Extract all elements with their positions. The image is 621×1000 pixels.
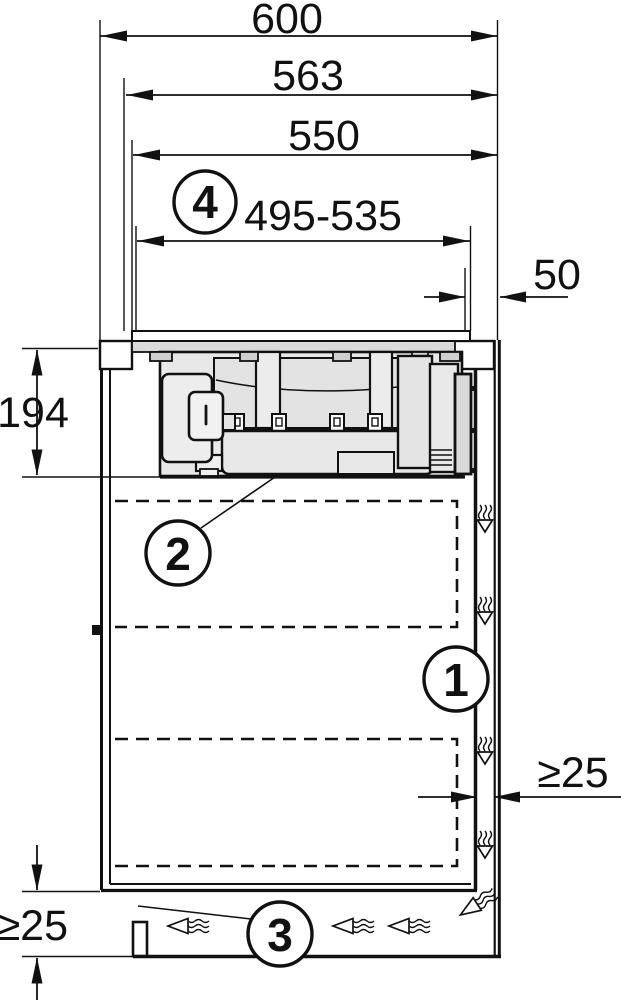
dim-194-label: 194 (0, 389, 69, 437)
dim-min25-right-label: ≥25 (537, 749, 608, 797)
callout-2: 2 (146, 521, 210, 585)
plinth-board (133, 922, 147, 956)
callout-1-label: 1 (443, 654, 469, 706)
dim-563-label: 563 (272, 52, 344, 100)
diagram-canvas: 4 2 1 3 600 563 550 495-535 50 194 ≥25 ≥… (0, 0, 621, 1000)
callouts: 4 2 1 3 (146, 171, 488, 966)
callout-4-label: 4 (192, 176, 218, 228)
airflow-left-icon (389, 919, 430, 934)
glass-cooktop (132, 331, 470, 341)
airflow-down-icon (478, 737, 493, 764)
callout-1: 1 (424, 647, 488, 711)
installation-diagram: 4 2 1 3 600 563 550 495-535 50 194 ≥25 ≥… (0, 0, 621, 1000)
airflow-arrows (168, 505, 499, 934)
airflow-down-icon (478, 597, 493, 624)
wall-joint-notch (92, 625, 102, 635)
callout-3-label: 3 (267, 909, 293, 961)
dim-600-label: 600 (251, 0, 323, 43)
callout-2-label: 2 (165, 528, 191, 580)
airflow-down-icon (478, 505, 493, 532)
dim-550-label: 550 (288, 112, 360, 160)
dimension-arrowheads (32, 31, 527, 984)
callout-3: 3 (248, 902, 312, 966)
appliance-section (132, 331, 476, 477)
worktop-left (100, 341, 132, 369)
airflow-left-icon (168, 919, 209, 934)
airflow-down-icon (478, 831, 493, 858)
dim-495-535-label: 495-535 (244, 192, 402, 240)
callout-4: 4 (174, 171, 236, 233)
dim-min25-bottom-label: ≥25 (0, 902, 68, 950)
dim-50-label: 50 (533, 251, 581, 299)
downdraft-duct (398, 356, 476, 474)
airflow-left-icon (333, 919, 374, 934)
